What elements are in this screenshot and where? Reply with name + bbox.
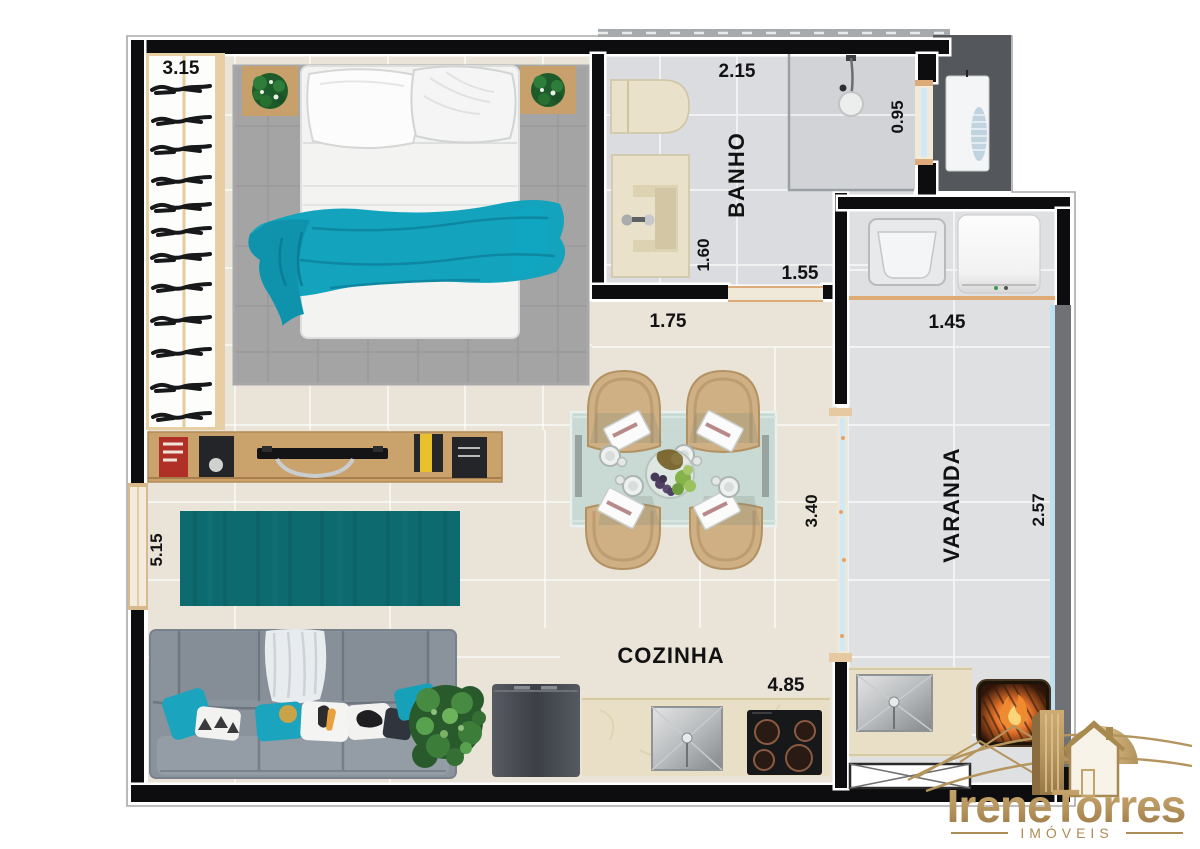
svg-text:4.85: 4.85	[768, 675, 805, 696]
svg-text:1.45: 1.45	[929, 312, 966, 333]
svg-text:2.15: 2.15	[719, 61, 756, 82]
svg-text:BANHO: BANHO	[724, 132, 749, 218]
svg-text:1.55: 1.55	[782, 263, 819, 284]
svg-text:2.57: 2.57	[1029, 493, 1048, 526]
svg-text:3.15: 3.15	[163, 58, 200, 79]
svg-text:COZINHA: COZINHA	[617, 643, 724, 668]
svg-text:1.60: 1.60	[694, 238, 713, 271]
svg-text:3.40: 3.40	[802, 494, 821, 527]
svg-text:IMÓVEIS: IMÓVEIS	[1020, 825, 1113, 841]
svg-text:1.75: 1.75	[650, 311, 687, 332]
svg-text:0.95: 0.95	[888, 100, 907, 133]
svg-text:5.15: 5.15	[147, 533, 166, 566]
svg-text:VARANDA: VARANDA	[939, 447, 964, 562]
